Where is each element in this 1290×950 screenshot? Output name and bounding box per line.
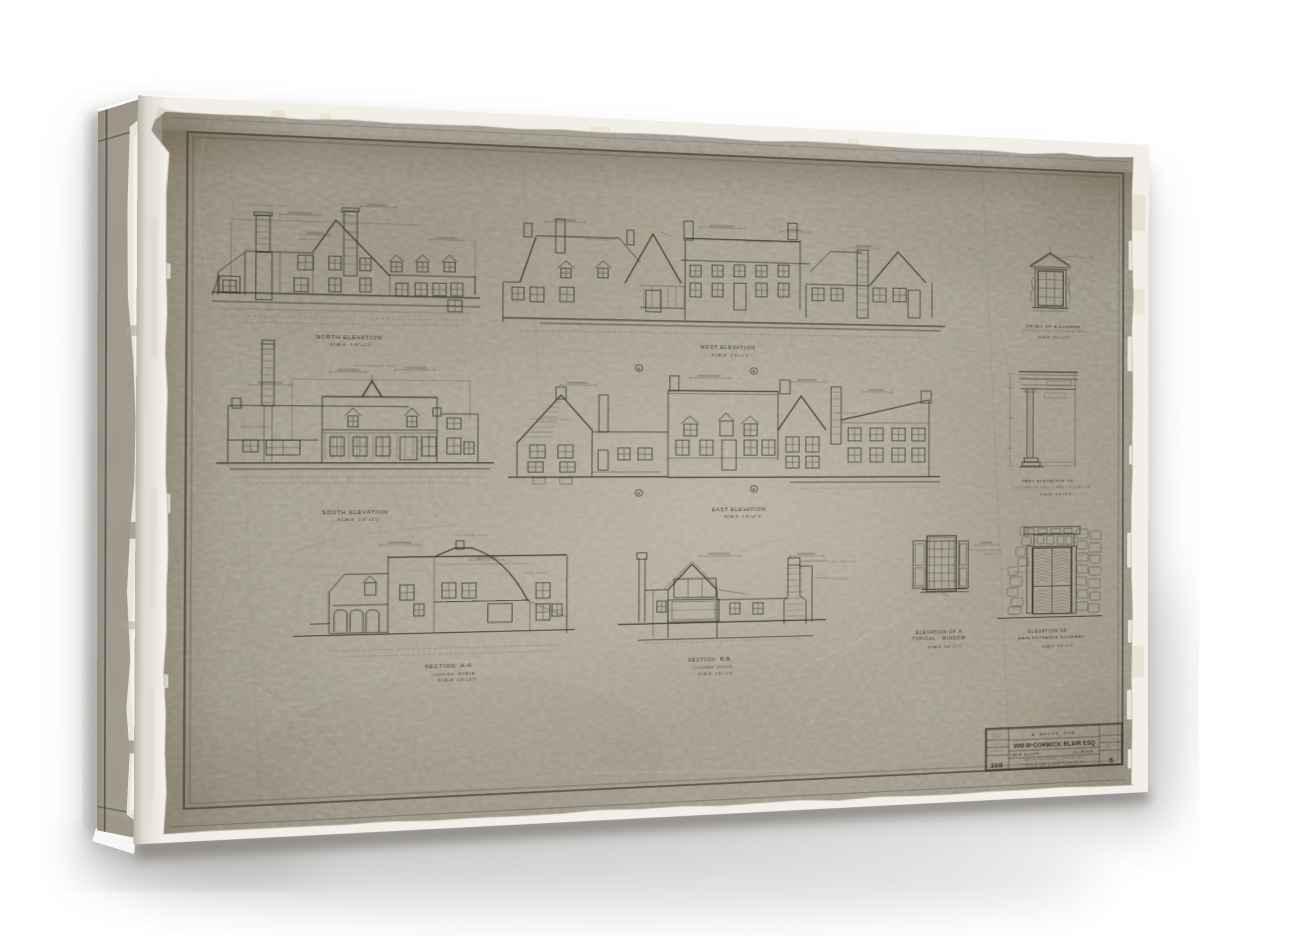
- svg-text:xxxx xxxx: xxxx xxxx: [1004, 619, 1020, 622]
- svg-text:SCALE 3/4"=1'0": SCALE 3/4"=1'0": [1040, 493, 1073, 496]
- svg-text:REVISED: REVISED: [1106, 738, 1116, 741]
- svg-text:xx xxxxxx xxxx: xx xxxxxx xxxx: [455, 534, 488, 538]
- svg-text:xxxxx xxx: xxxxx xxx: [1046, 619, 1062, 622]
- svg-text:SCALE 3/4"=1'0": SCALE 3/4"=1'0": [1038, 336, 1071, 340]
- svg-text:PART ELEVATION OF: PART ELEVATION OF: [1022, 479, 1074, 484]
- svg-text:NORTH ELEVATION: NORTH ELEVATION: [316, 335, 382, 341]
- svg-text:5: 5: [1109, 756, 1113, 764]
- svg-text:SCALE 1/8"=1'0": SCALE 1/8"=1'0": [338, 518, 381, 522]
- svg-text:DATE: DATE: [1108, 727, 1114, 730]
- svg-text:ILLINOIS: ILLINOIS: [1073, 749, 1094, 755]
- svg-text:B: B: [638, 492, 641, 496]
- svg-text:EAST ELEVATION: EAST ELEVATION: [712, 507, 766, 512]
- svg-text:xxxx: xxxx: [1091, 554, 1098, 556]
- svg-text:SCALE 1/8"=1'0": SCALE 1/8"=1'0": [712, 353, 751, 357]
- svg-text:SCALE 1/8"=1'0": SCALE 1/8"=1'0": [330, 343, 373, 347]
- svg-text:xxx xxxxxx: xxx xxxxxx: [836, 412, 857, 415]
- svg-text:SHEET NO: SHEET NO: [1105, 745, 1116, 748]
- svg-text:SCALE 1/8"=1'0": SCALE 1/8"=1'0": [724, 515, 763, 519]
- svg-text:xxx xxxxxx: xxx xxxxxx: [300, 237, 325, 241]
- svg-text:xxx xxxx: xxx xxxx: [1079, 256, 1094, 260]
- svg-text:xxxxx xxxx xxxx: xxxxx xxxx xxxx: [828, 560, 857, 564]
- svg-text:PORCHES ON EAST & WEST ELEVATI: PORCHES ON EAST & WEST ELEVATION: [1012, 486, 1091, 490]
- svg-text:B: B: [637, 367, 640, 371]
- svg-text:A: A: [753, 370, 756, 374]
- svg-text:xxxxx xxx: xxxxx xxx: [832, 577, 850, 581]
- svg-text:xxxx xxxxx: xxxx xxxxx: [525, 571, 548, 575]
- svg-text:xxx xxxxxxxx xxxx: xxx xxxxxxxx xxxx: [355, 364, 396, 368]
- svg-text:CHECKED: CHECKED: [991, 743, 1002, 746]
- svg-text:108: 108: [990, 761, 1003, 770]
- svg-text:xxxxxx xxxxx xxxx: xxxxxx xxxxx xxxx: [530, 417, 569, 421]
- svg-text:WEST ELEVATION: WEST ELEVATION: [700, 346, 755, 352]
- svg-text:xxxxx xxxxxx: xxxxx xxxxxx: [240, 425, 270, 429]
- svg-text:xxx xxxx: xxx xxxx: [984, 552, 999, 555]
- svg-text:SOUTH ELEVATION: SOUTH ELEVATION: [322, 510, 388, 516]
- svg-text:F C S: F C S: [993, 736, 1001, 740]
- svg-text:xxxx: xxxx: [1000, 568, 1007, 571]
- svg-text:xxxx xxxxx: xxxx xxxxx: [984, 548, 1003, 551]
- svg-text:DRAWN BY: DRAWN BY: [991, 733, 1003, 736]
- svg-text:A: A: [753, 488, 756, 492]
